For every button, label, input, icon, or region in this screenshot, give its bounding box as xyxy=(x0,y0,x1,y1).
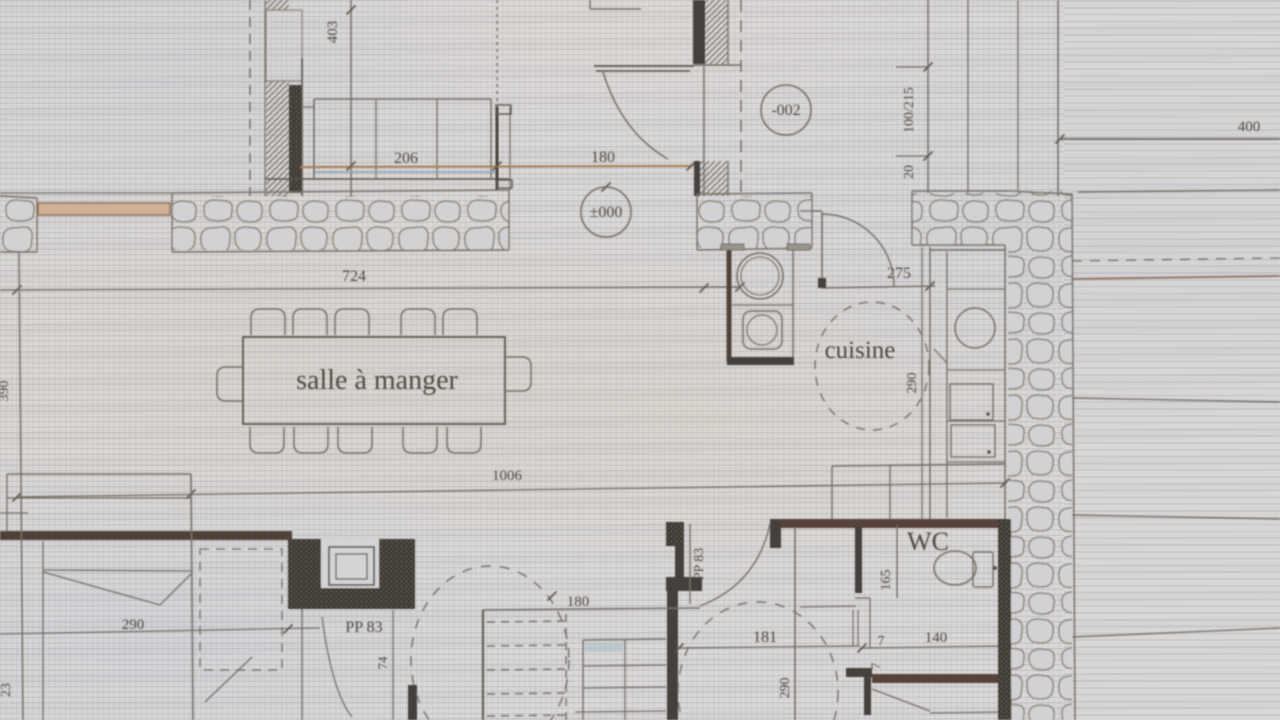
svg-text:206: 206 xyxy=(394,150,418,167)
svg-text:7: 7 xyxy=(878,634,885,649)
svg-text:74: 74 xyxy=(375,656,390,670)
svg-text:180: 180 xyxy=(567,594,590,610)
svg-text:403: 403 xyxy=(325,21,341,44)
svg-text:20: 20 xyxy=(902,165,917,179)
svg-text:100/215: 100/215 xyxy=(902,87,917,133)
svg-text:181: 181 xyxy=(753,629,777,646)
svg-text:390: 390 xyxy=(0,381,12,402)
svg-text:23: 23 xyxy=(0,683,14,697)
svg-text:140: 140 xyxy=(925,630,948,646)
svg-text:WC: WC xyxy=(907,527,949,556)
svg-text:275: 275 xyxy=(887,265,911,282)
svg-text:-002: -002 xyxy=(771,102,800,119)
svg-text:cuisine: cuisine xyxy=(825,337,896,364)
svg-text:PP 83: PP 83 xyxy=(345,619,382,636)
svg-text:1006: 1006 xyxy=(492,468,523,484)
svg-text:290: 290 xyxy=(905,373,920,394)
svg-text:salle à manger: salle à manger xyxy=(296,365,458,396)
svg-text:400: 400 xyxy=(1238,119,1261,135)
svg-text:290: 290 xyxy=(778,678,793,699)
svg-text:180: 180 xyxy=(591,149,615,166)
svg-text:724: 724 xyxy=(342,268,366,285)
svg-text:165: 165 xyxy=(879,570,894,591)
svg-text:±000: ±000 xyxy=(590,204,623,221)
svg-text:290: 290 xyxy=(122,617,145,633)
svg-text:PP 83: PP 83 xyxy=(692,548,707,581)
